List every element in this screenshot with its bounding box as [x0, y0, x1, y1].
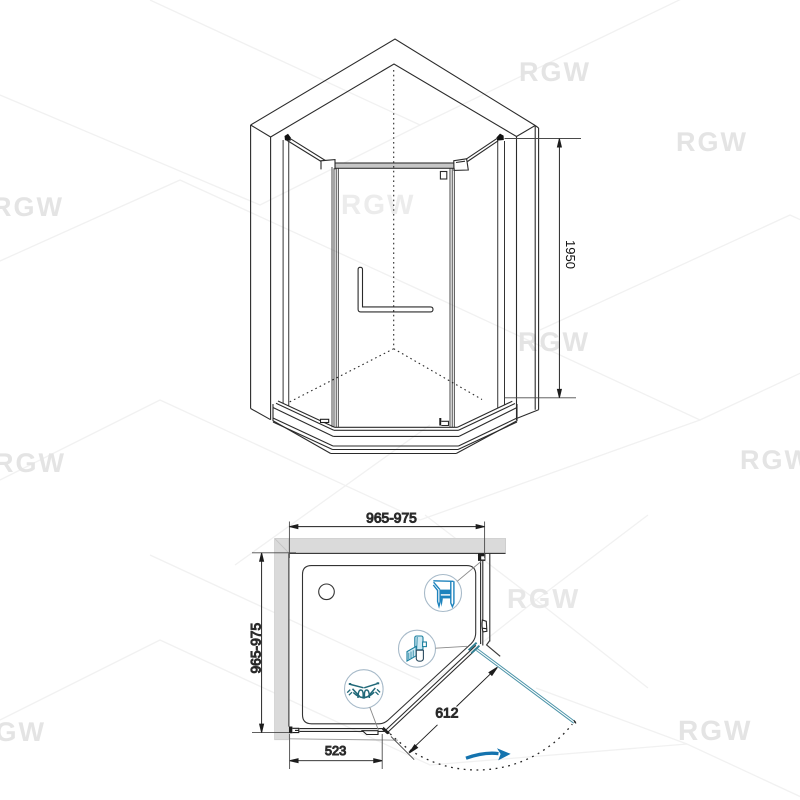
svg-text:612: 612	[435, 706, 458, 721]
svg-text:RGW: RGW	[676, 127, 748, 157]
svg-text:RGW: RGW	[678, 715, 752, 746]
svg-text:RGW: RGW	[507, 583, 580, 614]
svg-text:RGW: RGW	[740, 445, 800, 475]
svg-text:523: 523	[325, 743, 346, 758]
svg-text:RGW: RGW	[0, 717, 46, 747]
svg-text:RGW: RGW	[341, 189, 415, 220]
svg-text:RGW: RGW	[518, 327, 590, 357]
svg-text:1950: 1950	[563, 240, 578, 269]
svg-text:RGW: RGW	[0, 192, 64, 222]
svg-text:965-975: 965-975	[249, 623, 264, 674]
svg-text:965-975: 965-975	[366, 510, 417, 525]
svg-text:RGW: RGW	[519, 57, 591, 87]
svg-text:RGW: RGW	[0, 448, 66, 478]
